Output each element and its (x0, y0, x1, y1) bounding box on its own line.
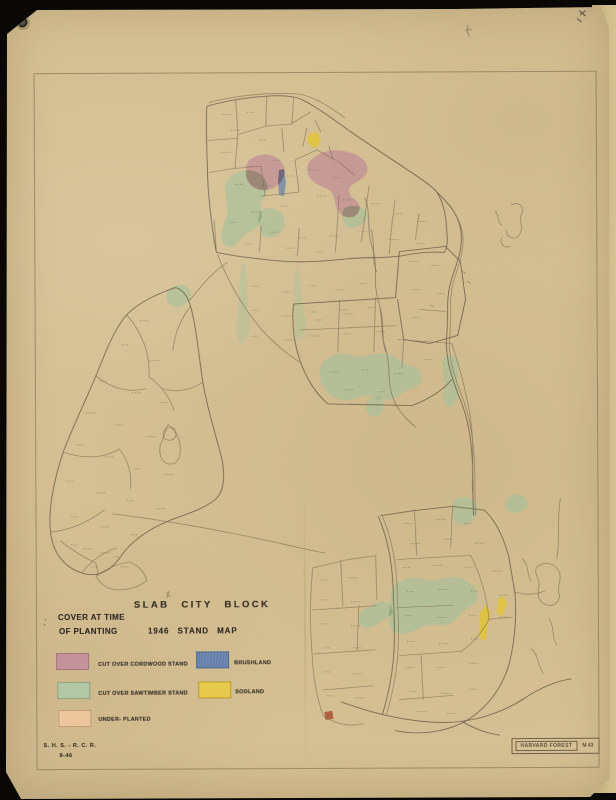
west-parcels-outline (49, 287, 224, 590)
legend-heading-line2: OF PLANTING (59, 627, 118, 636)
underplanted-stand-patch (324, 711, 333, 720)
stand-map-drawing (0, 0, 616, 800)
map-title: SLAB CITY BLOCK (134, 599, 270, 611)
archive-stamp: HARVARD FOREST M 43 (511, 738, 599, 754)
corner-grommet-hole (18, 18, 28, 28)
legend-label-underplanted: UNDER- PLANTED (98, 717, 150, 723)
map-subtitle: 1946 STAND MAP (148, 626, 238, 635)
legend-heading-line1: COVER AT TIME (58, 613, 125, 622)
legend-label-brushland: BRUSHLAND (234, 660, 271, 666)
legend-swatch-cordwood (56, 653, 89, 670)
stamp-number: M 43 (580, 743, 595, 749)
legend-swatch-brushland (196, 651, 229, 668)
sawtimber-stand-patches (166, 169, 529, 635)
legend-swatch-underplanted (58, 710, 91, 727)
legend-label-cordwood: CUT OVER CORDWOOD STAND (98, 662, 188, 668)
stamp-name: HARVARD FOREST (515, 741, 577, 751)
northeast-sketch (430, 204, 523, 307)
legend-label-sodland: SODLAND (235, 689, 264, 695)
scanned-map-sheet: SLAB CITY BLOCK 1946 STAND MAP COVER AT … (0, 0, 616, 800)
legend-swatch-sawtimber (57, 682, 90, 699)
brushland-stand-patch (278, 169, 286, 196)
credits-date: 8-46 (60, 753, 73, 759)
map-paper: SLAB CITY BLOCK 1946 STAND MAP COVER AT … (0, 0, 616, 800)
handwritten-marks (41, 11, 588, 625)
legend-label-sawtimber: CUT OVER SAWTIMBER STAND (98, 691, 188, 697)
roads-and-streams (111, 192, 476, 554)
legend-swatch-sodland (198, 681, 231, 698)
map-sheet-content: SLAB CITY BLOCK 1946 STAND MAP COVER AT … (0, 0, 616, 800)
credits-initials: S. H. S. - R. C. R. (43, 743, 96, 749)
